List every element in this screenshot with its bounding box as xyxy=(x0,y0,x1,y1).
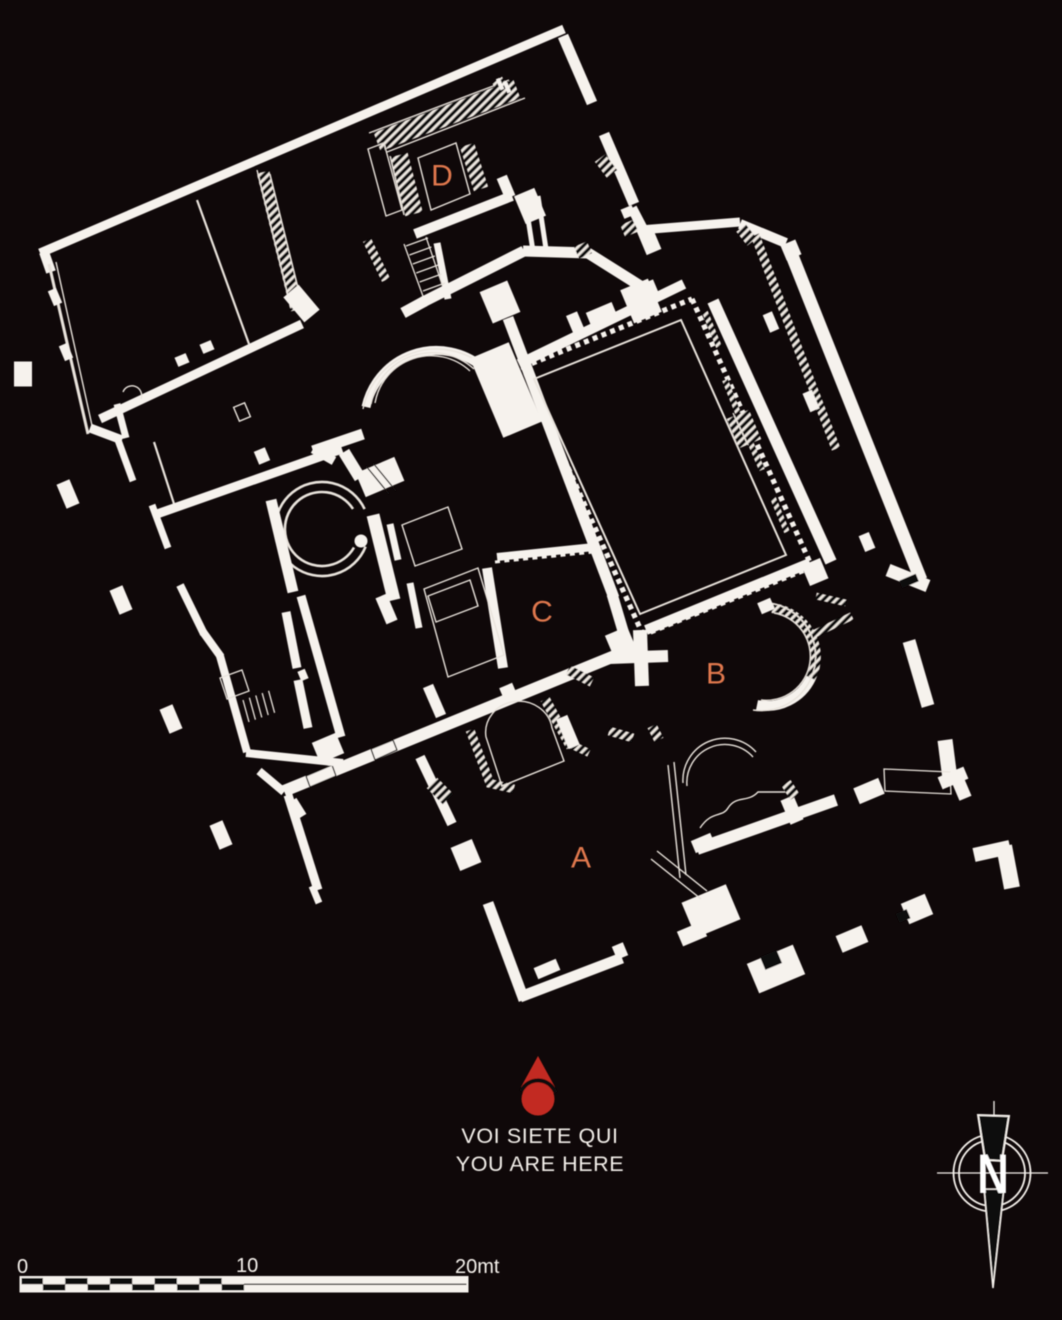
svg-text:C: C xyxy=(531,596,553,629)
svg-text:YOU ARE HERE: YOU ARE HERE xyxy=(456,1152,625,1176)
svg-text:B: B xyxy=(706,658,726,691)
svg-text:N: N xyxy=(977,1143,1009,1205)
svg-text:D: D xyxy=(431,160,453,193)
svg-text:A: A xyxy=(571,842,591,875)
svg-text:0: 0 xyxy=(17,1256,28,1278)
svg-text:20mt: 20mt xyxy=(455,1256,500,1278)
svg-text:VOI SIETE QUI: VOI SIETE QUI xyxy=(461,1124,618,1148)
svg-text:10: 10 xyxy=(236,1255,258,1277)
